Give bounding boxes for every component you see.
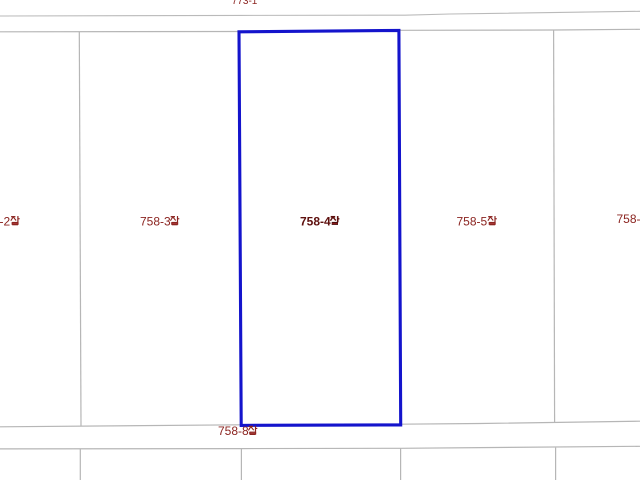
svg-text:758-4: 758-4 [300, 214, 331, 228]
svg-text:758-6: 758-6 [617, 212, 640, 226]
svg-text:758-2: 758-2 [0, 214, 11, 228]
svg-text:758-5: 758-5 [457, 214, 488, 228]
svg-text:758-3: 758-3 [140, 214, 171, 228]
svg-text:773-1: 773-1 [232, 0, 258, 7]
svg-text:758-8: 758-8 [218, 424, 249, 438]
